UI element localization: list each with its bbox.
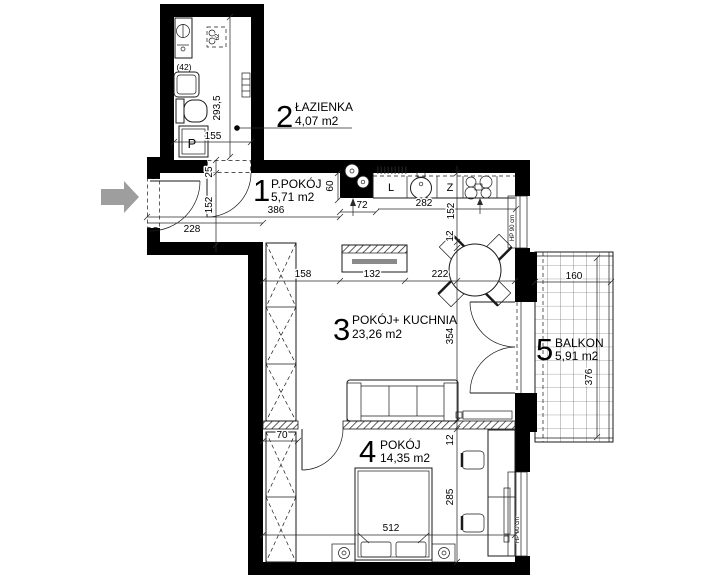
partition-left: [263, 421, 298, 429]
dim-kitchen-nib: 60: [325, 180, 336, 192]
room2-label: 2 ŁAZIENKA 4,07 m2: [276, 99, 353, 134]
dim-bedroom-width: 512: [383, 523, 400, 534]
gas-meter-2: [357, 176, 369, 188]
room3-area: 23,26 m2: [352, 327, 402, 341]
dim-balcony-width: 160: [566, 271, 583, 282]
kitchen-window: HP 90 cm: [507, 196, 528, 248]
room3-name: POKÓJ+ KUCHNIA: [352, 312, 457, 327]
room2-area: 4,07 m2: [295, 114, 339, 128]
balcony-door-swing-top: [470, 302, 515, 347]
dim-entry-width: 152: [204, 196, 215, 213]
dim-bath-width: 155: [205, 131, 222, 142]
room4-label: 4 POKÓJ 14,35 m2: [359, 434, 430, 469]
dim-kitchen-depth: 152: [446, 202, 457, 219]
entry-opening: [148, 179, 160, 228]
nightstand-left: [332, 544, 355, 562]
gas-meter-1: [345, 164, 359, 178]
room5-label: 5 BALKON 5,91 m2: [536, 332, 604, 367]
room1-label: 1 P.POKÓJ 5,71 m2: [253, 173, 321, 208]
lamp-right: [439, 548, 450, 559]
desk-chair-2: [462, 514, 484, 532]
fridge-label: L: [388, 182, 394, 194]
dim-partition-thickness: 12: [445, 434, 456, 446]
room1-area: 5,71 m2: [271, 190, 315, 204]
wall-entry-bottom: [147, 242, 263, 255]
bedroom-door-swing: [302, 429, 343, 470]
floor-plan-drawing: HP 90 cm HP 90 cm 62 (42): [0, 0, 724, 584]
wall-kitchen-top: [251, 160, 530, 173]
gas-marker-pillar: [350, 198, 356, 216]
water-heater-label: 62: [215, 33, 221, 40]
kitchen-sink: [411, 178, 432, 199]
sideboard-handle: [352, 259, 397, 264]
wall-bath-right: [251, 17, 264, 173]
gas-marker-hob: [477, 198, 483, 214]
balcony-door-swing-bottom: [470, 347, 515, 393]
room1-number: 1: [253, 173, 270, 208]
dim-counter-length: 282: [416, 198, 433, 209]
cabinet-label: (42): [176, 62, 191, 72]
lamp-left: [339, 548, 350, 559]
partition-wall: [263, 421, 515, 429]
wall-main-south: [248, 562, 530, 575]
wall-balcony-stub-top: [515, 252, 537, 302]
nightstand-right: [432, 544, 455, 562]
room5-number: 5: [536, 332, 553, 367]
room4-number: 4: [359, 434, 376, 469]
washing-machine-label: P: [188, 136, 197, 151]
dim-pillar-width: 72: [356, 200, 368, 211]
dining-set: [438, 234, 511, 306]
kitchen-window-sill-label: HP 90 cm: [510, 215, 516, 241]
room4-name: POKÓJ: [380, 437, 421, 452]
pillow-right: [396, 542, 426, 557]
hob-burner-4: [481, 188, 491, 198]
toilet-tank: [176, 99, 184, 123]
washbasin: [175, 18, 192, 58]
dim-bedroom-door-offset: 70: [276, 430, 288, 441]
dim-living-left: 158: [295, 269, 312, 280]
dim-entry-door: 228: [184, 224, 201, 235]
dim-bath-height: 293,5: [212, 95, 223, 120]
sofa: [347, 380, 458, 421]
room3-label: 3 POKÓJ+ KUCHNIA 23,26 m2: [333, 312, 457, 347]
sideboard: [342, 245, 407, 272]
dim-entry-nib: 25: [204, 166, 215, 178]
wall-right-4: [515, 556, 530, 575]
toilet-bowl: [184, 100, 207, 122]
wardrobe-living: [266, 243, 296, 421]
dim-living-right: 222: [432, 269, 449, 280]
room5-name: BALKON: [555, 336, 604, 350]
desk-chair-1: [462, 451, 484, 469]
dishwasher-label: Z: [447, 182, 454, 194]
dim-bedroom-height: 285: [445, 488, 456, 505]
wall-main-left: [248, 242, 263, 562]
bedroom-window-sill-label: HP 90 cm: [515, 517, 521, 543]
dim-living-height: 354: [445, 327, 456, 344]
room2-leader-dot: [234, 125, 240, 131]
dim-kitchen-step: 12: [445, 230, 456, 242]
room2-name: ŁAZIENKA: [295, 100, 353, 114]
wall-bath-top: [160, 4, 264, 17]
room4-area: 14,35 m2: [380, 451, 430, 465]
floor-plan-page: HP 90 cm HP 90 cm 62 (42): [0, 0, 724, 584]
wall-hall-top-left: [147, 160, 207, 173]
hob-burner-1: [466, 177, 476, 187]
balcony-door-opening: [514, 302, 531, 393]
bed: [355, 468, 432, 560]
dim-living-mid: 132: [364, 269, 381, 280]
room5-area: 5,91 m2: [555, 349, 599, 363]
partition-right: [343, 421, 515, 429]
pillow-left: [361, 542, 391, 557]
wall-bath-left: [160, 4, 174, 173]
sofa-armrest-left: [347, 383, 361, 421]
room3-number: 3: [333, 312, 350, 347]
room2-number: 2: [276, 99, 293, 134]
dim-balcony-height: 376: [584, 368, 595, 385]
wall-balcony-stub-bottom: [515, 393, 537, 432]
entrance-arrow-icon: [101, 181, 139, 213]
wardrobe-bedroom: [266, 432, 296, 562]
bedroom-window: HP 90 cm: [504, 472, 528, 556]
wall-right-1: [515, 160, 530, 196]
living-radiator: [463, 411, 512, 419]
washbasin-drain: [181, 47, 185, 51]
room1-name: P.POKÓJ: [271, 176, 321, 191]
